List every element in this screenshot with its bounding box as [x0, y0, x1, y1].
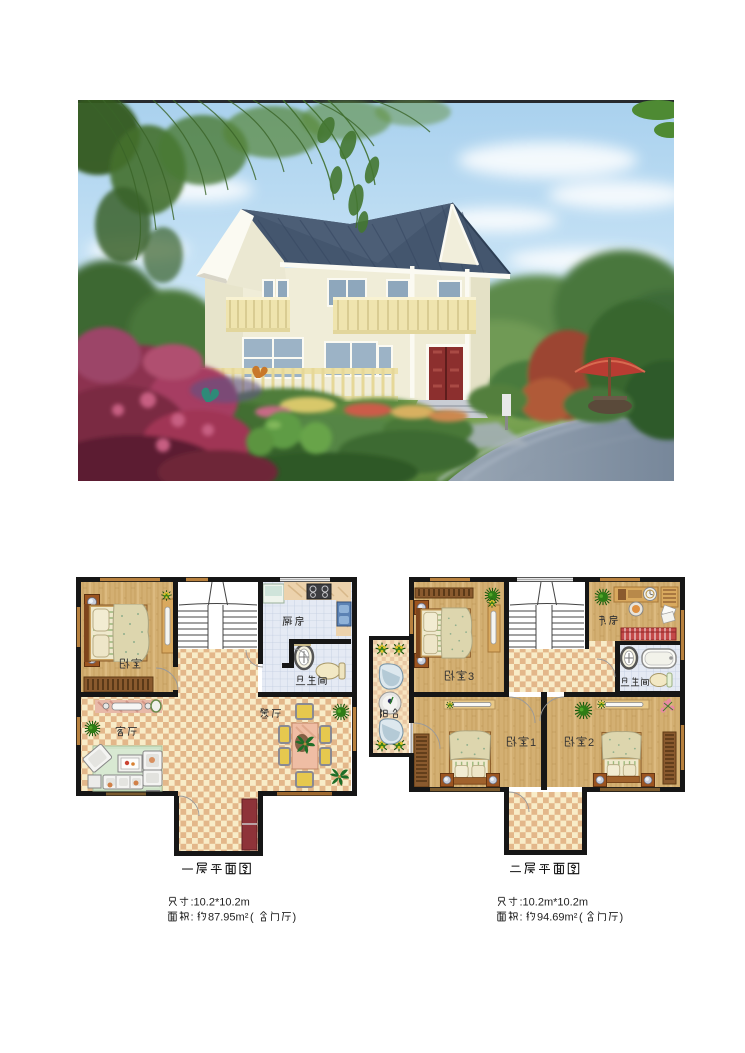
svg-text:94.69m²: 94.69m² [537, 912, 578, 924]
svg-text::10.2*10.2m: :10.2*10.2m [191, 897, 250, 909]
svg-text:3: 3 [468, 671, 474, 683]
svg-text::10.2m*10.2m: :10.2m*10.2m [520, 897, 588, 909]
svg-text:(: ( [579, 912, 583, 924]
svg-text::: : [191, 912, 194, 924]
svg-text:87.95m²: 87.95m² [208, 912, 249, 924]
svg-text:): ) [293, 912, 297, 924]
svg-text::: : [520, 912, 523, 924]
svg-text:1: 1 [530, 737, 536, 749]
svg-text:(: ( [250, 912, 254, 924]
svg-text:2: 2 [588, 737, 594, 749]
svg-text:): ) [620, 912, 624, 924]
